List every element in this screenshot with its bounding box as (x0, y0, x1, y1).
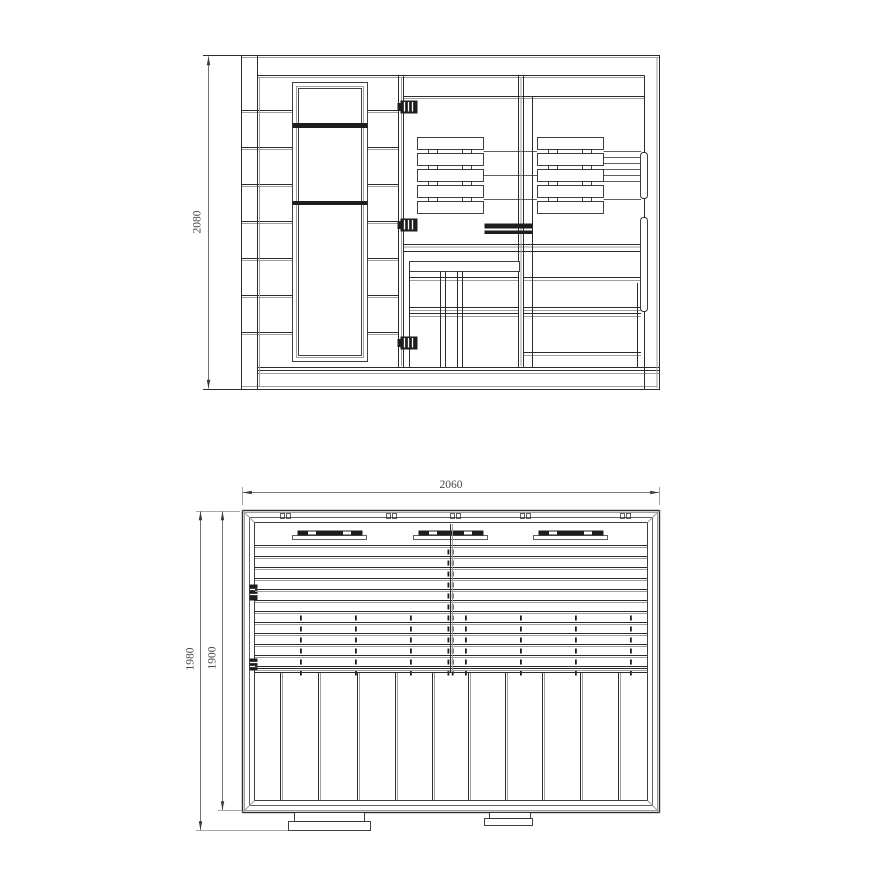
bench-side-bracket (641, 218, 648, 312)
slat-joint-tick (448, 627, 450, 632)
door-handle-bar (485, 231, 533, 235)
slat-spacer (463, 150, 472, 154)
slat-screw-tick (355, 638, 357, 643)
backrest-slat-board (418, 170, 484, 182)
slat-screw-tick (465, 638, 467, 643)
slat-screw-tick (630, 660, 632, 665)
slat-joint-tick (448, 594, 450, 599)
slat-screw-tick (465, 616, 467, 621)
slat-screw-tick (355, 616, 357, 621)
depth-overall-dimension-label: 1980 (185, 647, 197, 670)
slat-joint-tick (448, 550, 450, 555)
slat-screw-tick (630, 638, 632, 643)
slat-screw-tick (300, 660, 302, 665)
track-roller (429, 532, 437, 535)
backrest-slat-board (538, 186, 604, 198)
slat-screw-tick (630, 627, 632, 632)
track-roller (343, 532, 351, 535)
slat-screw-tick (465, 649, 467, 654)
track-roller (308, 532, 316, 535)
plan-hinge-mark (250, 585, 258, 601)
slat-screw-tick (520, 638, 522, 643)
window-crossbar (293, 201, 368, 205)
slat-spacer (549, 182, 558, 186)
plan-view-width-dimension: 2060 (243, 479, 659, 493)
slat-screw-tick (355, 660, 357, 665)
slat-screw-tick (630, 616, 632, 621)
bench-side-bracket (641, 153, 648, 199)
window-frame-inner (299, 89, 362, 356)
slat-screw-tick (300, 616, 302, 621)
bench-top-board (410, 262, 520, 272)
threshold-board (490, 813, 531, 819)
backrest-slat-board (418, 202, 484, 214)
slat-screw-tick (575, 627, 577, 632)
threshold-board (485, 819, 533, 826)
front-elevation-view: 2080 (192, 55, 660, 390)
slat-screw-tick (575, 638, 577, 643)
slat-screw-tick (300, 638, 302, 643)
slat-spacer (429, 182, 438, 186)
slat-spacer (549, 150, 558, 154)
door-track-bar (298, 531, 363, 536)
backrest-slat-board (538, 202, 604, 214)
slat-screw-tick (575, 616, 577, 621)
slat-spacer (463, 166, 472, 170)
slat-joint-tick (448, 616, 450, 621)
threshold-board (289, 822, 371, 831)
door-handle-bar (485, 224, 533, 229)
backrest-slat-board (538, 154, 604, 166)
slat-screw-tick (630, 649, 632, 654)
slat-screw-tick (410, 627, 412, 632)
front-view-height-dimension: 2080 (192, 57, 209, 389)
hinge-knuckle (398, 103, 401, 111)
backrest-slat-board (418, 154, 484, 166)
slat-joint-tick (448, 605, 450, 610)
slat-spacer (463, 182, 472, 186)
slat-screw-tick (300, 649, 302, 654)
slat-joint-tick (448, 572, 450, 577)
backrest-slat-board (538, 138, 604, 150)
slat-screw-tick (575, 649, 577, 654)
slat-screw-tick (410, 649, 412, 654)
front-view-linework (203, 55, 660, 390)
slat-joint-tick (448, 561, 450, 566)
height-dimension-label: 2080 (192, 210, 204, 233)
plan-view: 2060 1980 1900 (185, 479, 660, 831)
backrest-slat-board (418, 186, 484, 198)
slat-screw-tick (465, 627, 467, 632)
slat-screw-tick (410, 616, 412, 621)
slat-screw-tick (575, 660, 577, 665)
slat-spacer (429, 166, 438, 170)
slat-screw-tick (520, 649, 522, 654)
slat-screw-tick (520, 616, 522, 621)
window-crossbar (293, 123, 368, 128)
slat-spacer (549, 198, 558, 202)
plan-view-depth-overall-dimension: 1980 (185, 512, 201, 831)
depth-inner-dimension-label: 1900 (207, 646, 219, 669)
plan-view-linework (196, 487, 660, 831)
threshold-board (295, 813, 365, 822)
slat-spacer (583, 198, 592, 202)
slat-spacer (463, 198, 472, 202)
slat-spacer (429, 198, 438, 202)
track-roller (464, 532, 472, 535)
slat-screw-tick (520, 627, 522, 632)
width-dimension-label: 2060 (440, 479, 463, 491)
slat-screw-tick (355, 649, 357, 654)
track-roller (584, 532, 592, 535)
plan-view-depth-inner-dimension: 1900 (207, 512, 223, 811)
slat-joint-tick (448, 660, 450, 665)
hinge-knuckle (398, 339, 401, 347)
slat-spacer (583, 150, 592, 154)
track-roller (549, 532, 557, 535)
slat-joint-tick (448, 638, 450, 643)
door-track-bar (539, 531, 604, 536)
slat-screw-tick (520, 660, 522, 665)
slat-screw-tick (410, 638, 412, 643)
slat-joint-tick (448, 649, 450, 654)
slat-spacer (549, 166, 558, 170)
backrest-slat-board (538, 170, 604, 182)
slat-screw-tick (355, 627, 357, 632)
slat-spacer (583, 182, 592, 186)
slat-spacer (583, 166, 592, 170)
hinge-knuckle (398, 221, 401, 229)
sauna-cad-drawing: 2080 2060 1980 1900 (0, 0, 886, 886)
backrest-slat-board (418, 138, 484, 150)
slat-screw-tick (300, 627, 302, 632)
technical-drawing-canvas: 2080 2060 1980 1900 (0, 0, 886, 886)
slat-joint-tick (448, 583, 450, 588)
slat-screw-tick (410, 660, 412, 665)
slat-screw-tick (465, 660, 467, 665)
slat-spacer (429, 150, 438, 154)
